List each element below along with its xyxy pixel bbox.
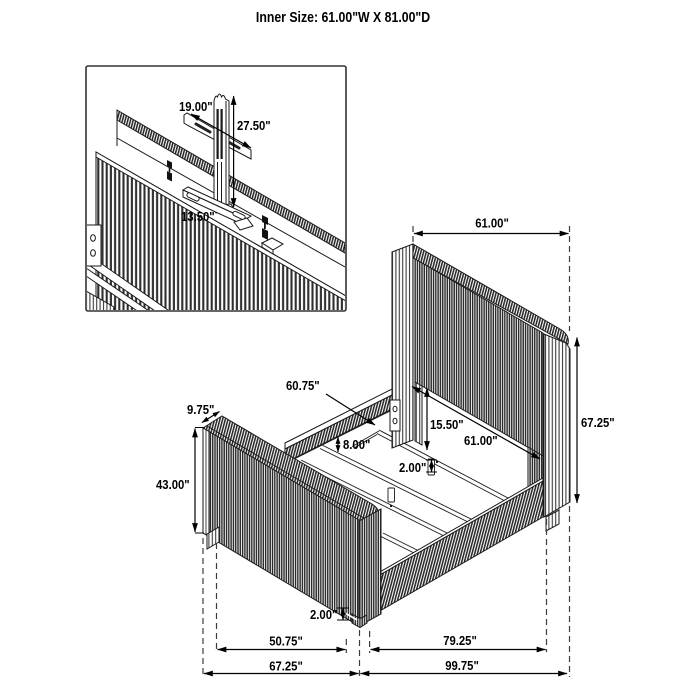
- svg-text:60.75": 60.75": [286, 378, 320, 393]
- svg-text:19.00": 19.00": [179, 99, 213, 114]
- svg-text:43.00": 43.00": [156, 477, 190, 492]
- svg-text:8.00": 8.00": [343, 437, 370, 452]
- svg-text:9.75": 9.75": [187, 402, 214, 417]
- svg-text:61.00": 61.00": [464, 433, 498, 448]
- svg-text:79.25": 79.25": [443, 633, 477, 648]
- svg-text:2.00": 2.00": [399, 460, 426, 475]
- svg-text:61.00": 61.00": [475, 216, 509, 231]
- svg-text:15.50": 15.50": [430, 417, 464, 432]
- svg-text:67.25": 67.25": [269, 659, 303, 674]
- svg-text:13.50": 13.50": [181, 209, 215, 224]
- svg-text:2.00": 2.00": [310, 607, 337, 622]
- svg-text:50.75": 50.75": [269, 634, 303, 649]
- svg-text:Inner Size: 61.00"W X 81.00"D: Inner Size: 61.00"W X 81.00"D: [256, 9, 430, 25]
- svg-text:99.75": 99.75": [445, 658, 479, 673]
- svg-text:27.50": 27.50": [237, 118, 271, 133]
- svg-text:67.25": 67.25": [581, 415, 615, 430]
